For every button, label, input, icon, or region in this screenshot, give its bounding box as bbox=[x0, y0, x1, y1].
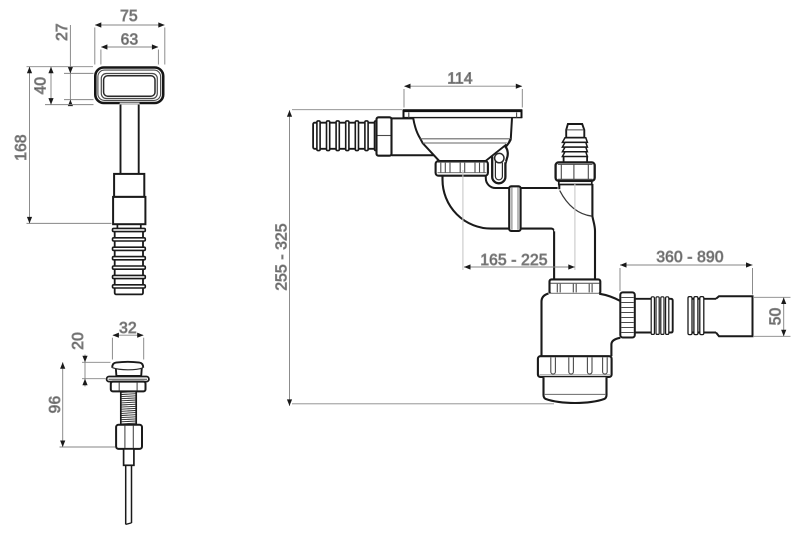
svg-text:255 - 325: 255 - 325 bbox=[273, 223, 290, 290]
svg-text:114: 114 bbox=[447, 71, 472, 88]
svg-text:63: 63 bbox=[121, 32, 139, 49]
svg-text:96: 96 bbox=[47, 396, 64, 414]
svg-text:32: 32 bbox=[119, 320, 137, 337]
svg-text:165 - 225: 165 - 225 bbox=[480, 252, 547, 269]
svg-text:168: 168 bbox=[13, 134, 30, 160]
svg-text:75: 75 bbox=[120, 8, 138, 25]
svg-text:360 - 890: 360 - 890 bbox=[656, 249, 723, 266]
svg-text:50: 50 bbox=[767, 307, 784, 325]
svg-text:27: 27 bbox=[54, 23, 71, 41]
svg-text:20: 20 bbox=[70, 332, 87, 350]
svg-text:40: 40 bbox=[33, 77, 50, 95]
